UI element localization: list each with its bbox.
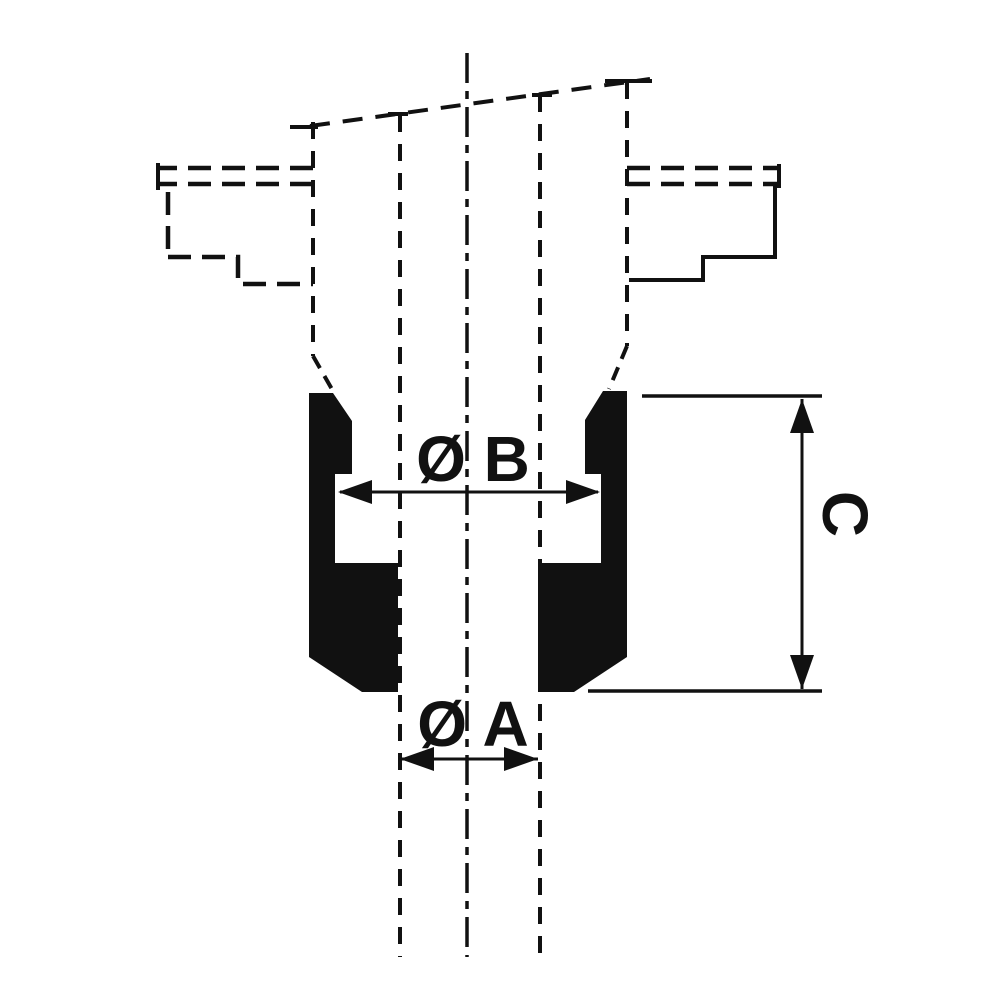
grommet-section-right-half xyxy=(538,391,627,692)
top-slanted-hidden-line xyxy=(310,79,650,126)
right-fitting-step-solid xyxy=(629,186,775,280)
height-c-arrow-top xyxy=(790,399,814,433)
hidden-funnel-outline xyxy=(290,79,652,391)
diameter-b-label: Ø B xyxy=(416,423,530,495)
diameter-b-arrow-right xyxy=(566,480,600,504)
diameter-a-label: Ø A xyxy=(417,688,528,760)
grommet-section-left-half xyxy=(309,393,398,692)
technical-drawing: Ø B Ø A C xyxy=(0,0,1000,1000)
cable-hidden-lines xyxy=(400,95,540,957)
dimension-diameter-a: Ø A xyxy=(400,688,538,771)
left-fitting-hidden-outline xyxy=(158,163,313,284)
height-c-label: C xyxy=(809,491,881,537)
right-fitting-outline xyxy=(627,164,779,280)
height-c-arrow-bottom xyxy=(790,655,814,689)
dimension-height-c: C xyxy=(588,396,881,691)
diameter-b-arrow-left xyxy=(338,480,372,504)
dimension-diameter-b: Ø B xyxy=(338,423,600,504)
funnel-right-taper xyxy=(609,346,627,389)
funnel-left-taper xyxy=(313,356,333,391)
drawing-canvas: Ø B Ø A C xyxy=(0,0,1000,1000)
left-fitting-step xyxy=(168,257,313,284)
